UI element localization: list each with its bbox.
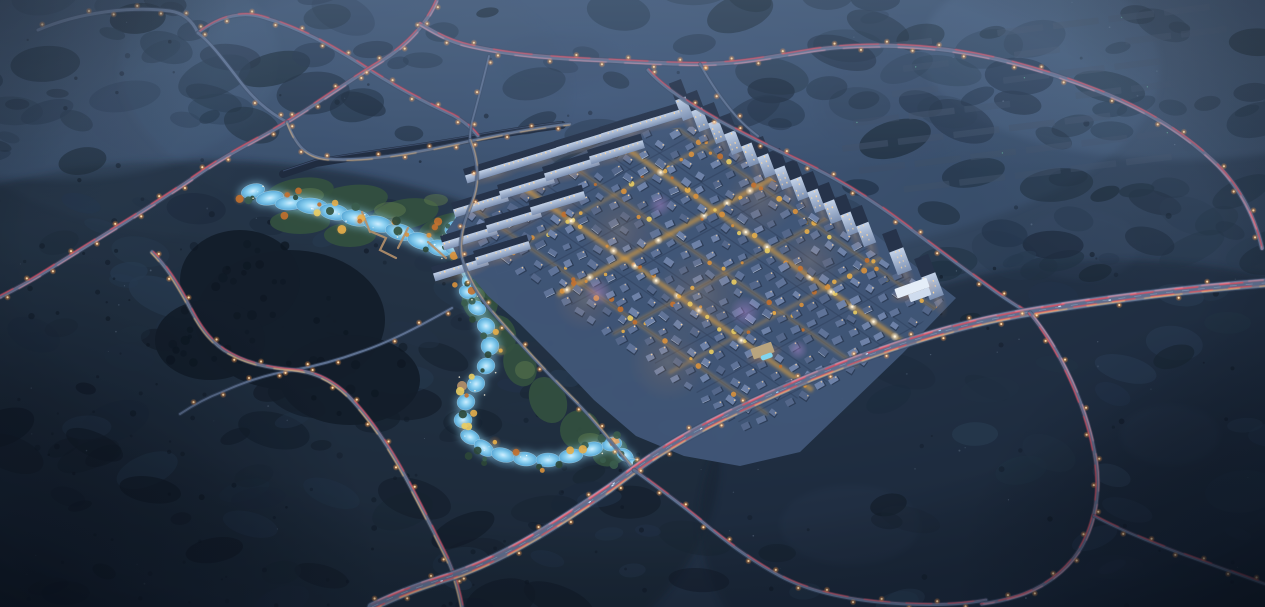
- scene-canvas: [0, 0, 1265, 607]
- aerial-rendering-stage: [0, 0, 1265, 607]
- effects-layer: [0, 0, 1265, 607]
